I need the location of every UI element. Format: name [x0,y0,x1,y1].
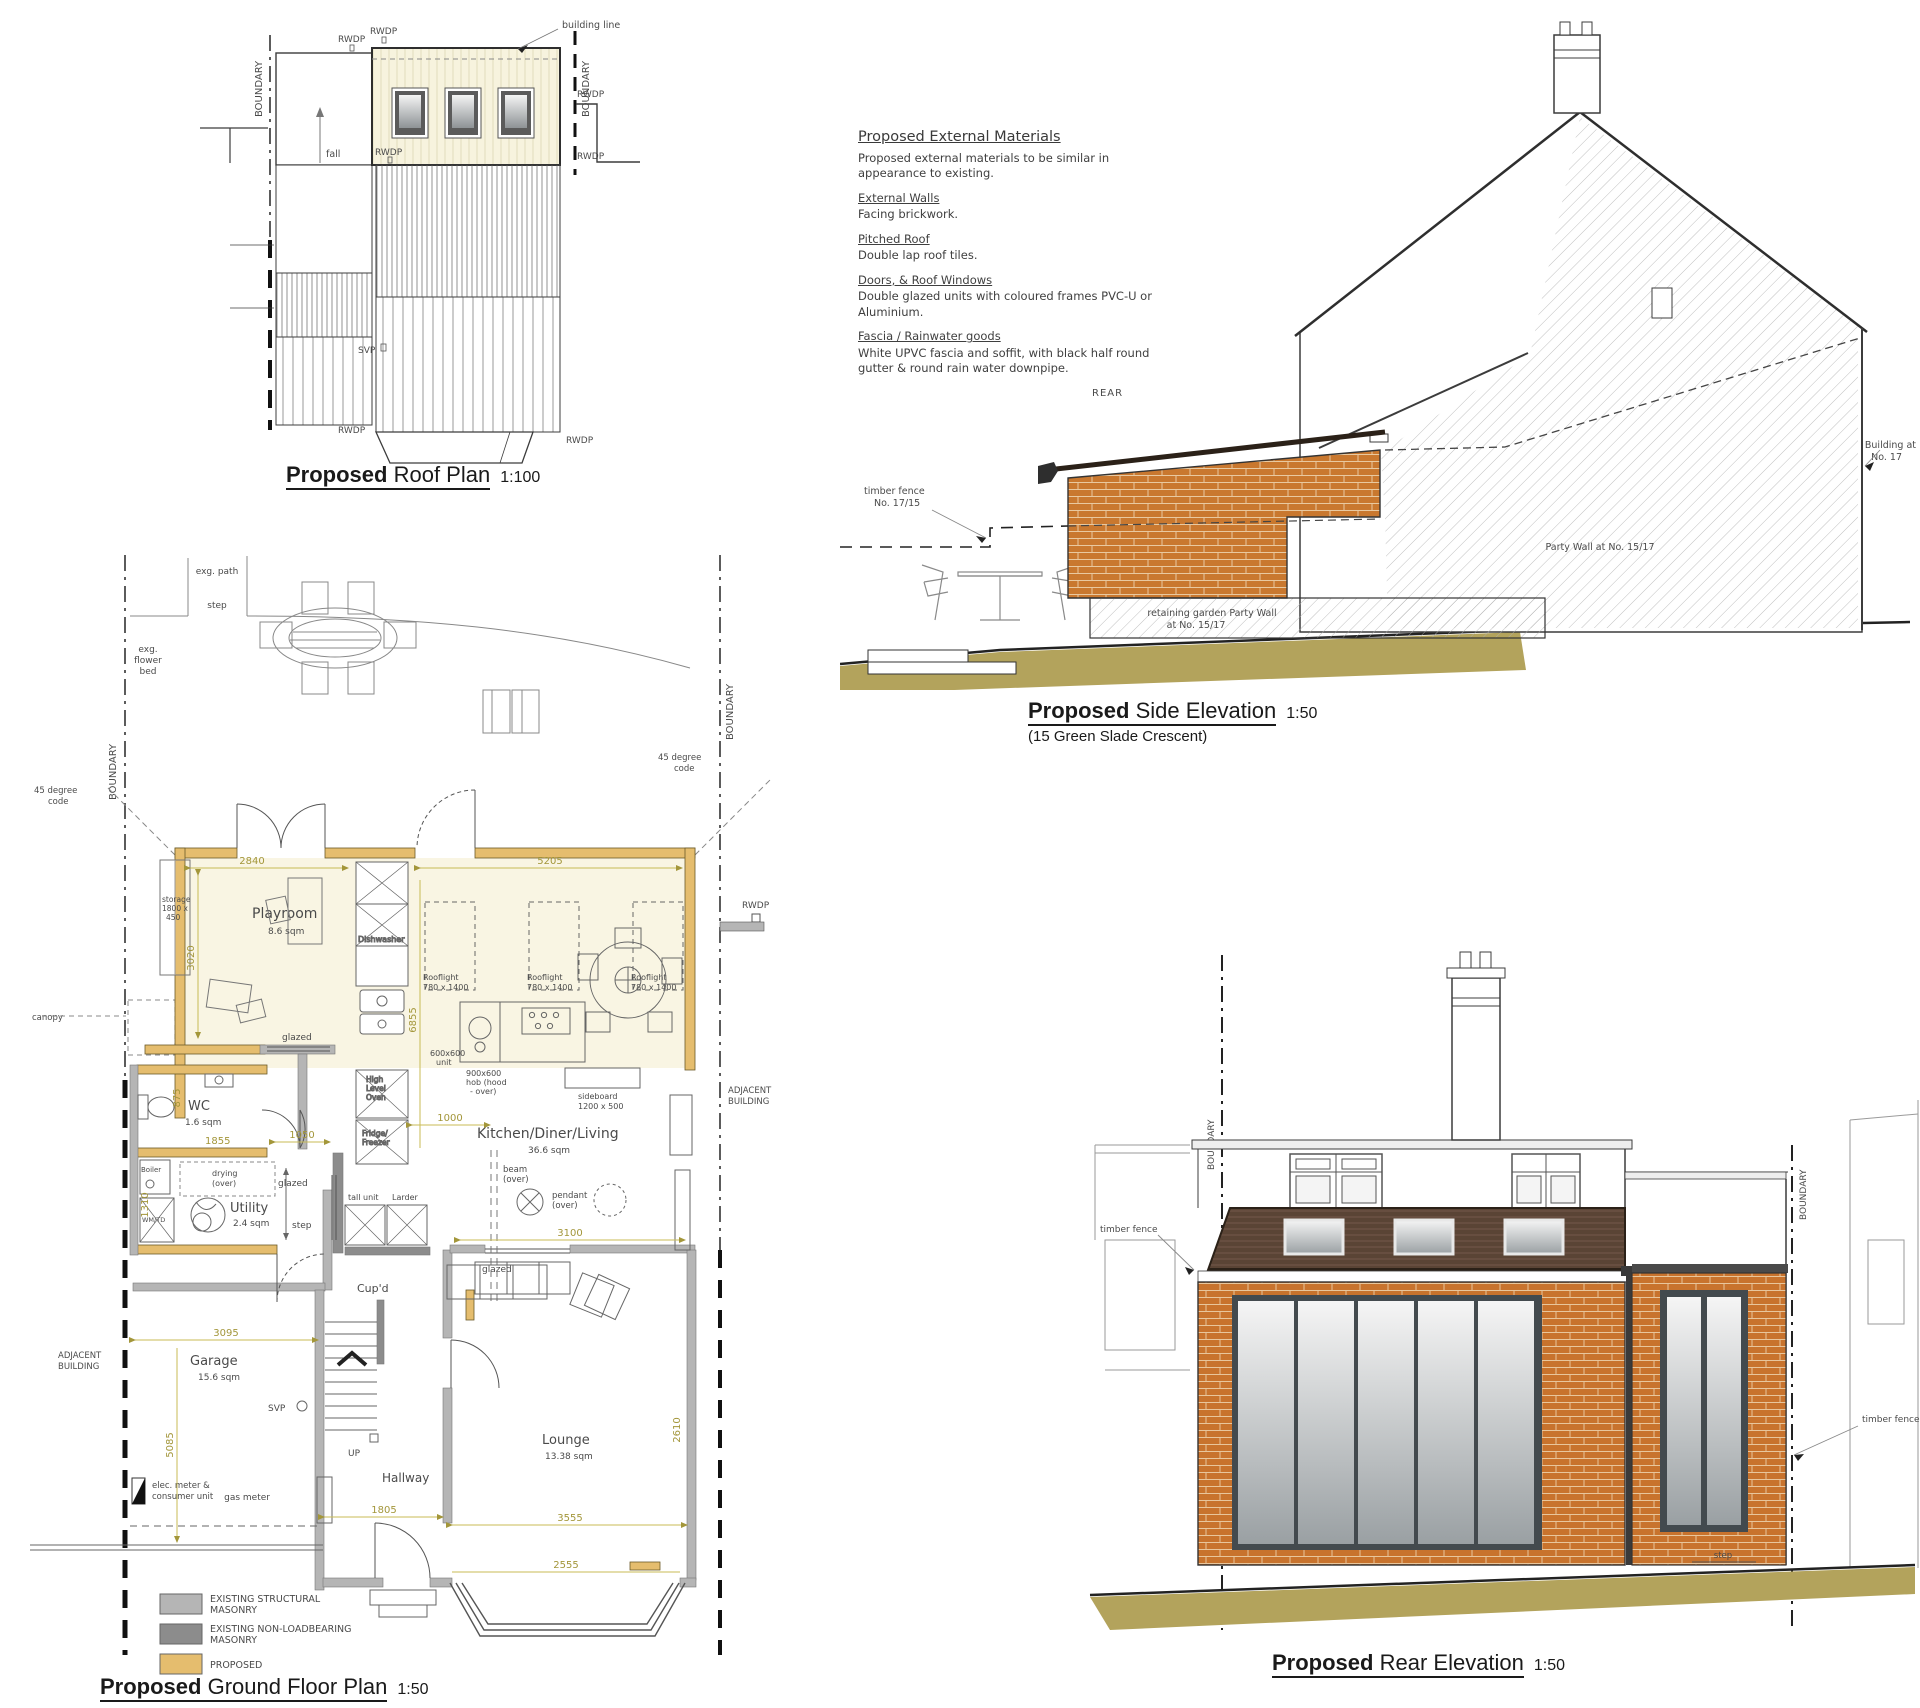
side-return-window [1660,1290,1748,1532]
architectural-drawing-sheet: BOUNDARY BOUNDARY fall bu [0,0,1920,1708]
existing-house [1295,22,1867,632]
oven-label: Level [366,1084,386,1093]
boundary-label: BOUNDARY [254,60,265,117]
hob-label: hob (hood [466,1078,507,1087]
timber-fence-label: timber fence [864,486,925,497]
garden-table [260,582,416,694]
storage-label: 1800 x [162,904,188,913]
ground-floor-plan-drawing: BOUNDARY BOUNDARY exg. path step exg. fl… [30,550,810,1705]
legend-swatch-structural [160,1594,202,1614]
title-scale: 1:50 [1534,1657,1565,1674]
flower-bed-label: flower [134,656,162,666]
garage: Garage 15.6 sqm SVP gas meter elec. mete… [30,1354,332,1550]
rwdp-label: RWDP [338,426,366,436]
side-elevation-drawing: timber fence No. 17/15 REAR retaining ga… [840,20,1920,690]
building-at-label-1: Building at [1865,440,1916,451]
title-bold: Proposed [100,1674,201,1699]
room-area: 15.6 sqm [198,1373,240,1383]
storage-label: storage [162,895,191,904]
wc-room: WC 1.6 sqm [138,1074,233,1128]
bay-window [450,1583,685,1636]
room-area: 2.4 sqm [233,1219,269,1229]
legend-label: MASONRY [210,1605,257,1616]
rwdp-label: RWDP [375,148,403,158]
boundary-label: BOUNDARY [581,60,592,117]
boundary-label: BOUNDARY [108,743,119,800]
staircase [325,1322,378,1442]
rwdp-label: RWDP [742,901,770,911]
room-area: 13.38 sqm [545,1452,593,1462]
deg-code-label: code [674,764,695,774]
title-scale: 1:100 [500,469,540,486]
dishwasher-label: Dishwasher [358,935,405,944]
rooflight-label: 780 x 1400 [527,983,572,992]
dim-1805: 1805 [371,1505,396,1516]
dim-5085: 5085 [165,1432,176,1457]
fridge-label: Fridge/ [362,1129,388,1138]
sideboard-label: sideboard [578,1092,618,1101]
deg-code-label: 45 degree [658,753,701,763]
adjacent-label: ADJACENT [58,1351,102,1361]
storage-label: 450 [166,913,181,922]
exg-path-label: exg. path [196,567,239,577]
glazed-label: glazed [282,1033,312,1043]
rooflight-label: Rooflight [423,973,459,982]
rooflight [1285,1220,1563,1254]
rear-elevation-title: Proposed Rear Elevation1:50 [1272,1650,1565,1676]
timber-fence-label: timber fence [1862,1415,1920,1425]
adjacent-label: BUILDING [728,1097,769,1107]
title-bold: Proposed [286,462,387,487]
fridge-label: Freezer [362,1138,390,1147]
hob-label: 900x600 [466,1069,501,1078]
rear-label: REAR [1092,388,1123,399]
pendant-label: pendant [552,1191,588,1201]
rwdp-label: RWDP [338,35,366,45]
pantry-units [345,1205,427,1245]
dim-2555: 2555 [553,1560,578,1571]
deg-code-label: 45 degree [34,786,77,796]
roof-plan-drawing: BOUNDARY BOUNDARY fall bu [170,5,700,465]
rooflight-label: Rooflight [631,973,667,982]
hob-label: - over) [470,1087,496,1096]
upper-window-right [1512,1154,1580,1208]
extension-roof [1208,1208,1632,1270]
adjacent-building-labels: ADJACENT BUILDING ADJACENT BUILDING [58,1086,772,1372]
party-wall-label: Party Wall at No. 15/17 [1545,542,1654,553]
legend-swatch-nonloadbearing [160,1624,202,1644]
sideboard-label: 1200 x 500 [578,1102,623,1111]
rear-elevation-drawing: BOUNDARY BOUNDARY [1080,940,1920,1640]
dim-6855: 6855 [408,1007,419,1032]
extension-brick-wall [1198,1266,1637,1565]
chimney [1447,952,1505,1140]
legend-label: EXISTING NON-LOADBEARING [210,1624,352,1635]
beam-label: (over) [503,1175,529,1185]
elec-meter-label: elec. meter & [152,1481,210,1491]
step-label: step [292,1221,312,1231]
boundary-label: BOUNDARY [725,683,736,740]
rooflight-label: Rooflight [527,973,563,982]
title-rest: Roof Plan [394,462,491,487]
canopy-label: canopy [32,1013,63,1023]
dim-3020: 3020 [186,945,197,970]
gutter-icon [1038,462,1058,484]
ground-floor-title: Proposed Ground Floor Plan1:50 [100,1674,429,1700]
gas-meter-label: gas meter [224,1493,270,1503]
legend-label: MASONRY [210,1635,257,1646]
utility-room: Boiler WM/TD drying (over) Utility 2.4 s… [140,1160,289,1242]
elec-meter-label: consumer unit [152,1492,214,1502]
upper-window-left [1290,1154,1382,1208]
room-area: 8.6 sqm [268,927,304,937]
patio-table-chairs [922,565,1078,620]
deg-code-label: code [48,797,69,807]
rwdp-label: RWDP [370,27,398,37]
glazed-label: glazed [278,1179,308,1189]
legend-swatch-proposed [160,1654,202,1674]
dim-1050: 1050 [289,1130,314,1141]
title-scale: 1:50 [1286,705,1317,722]
adjacent-label: ADJACENT [728,1086,772,1096]
room-area: 1.6 sqm [185,1118,221,1128]
beam-label: beam [503,1165,527,1175]
bifold-glazed-doors [1232,1295,1542,1550]
oven-label: High [366,1075,383,1084]
flower-bed-label: bed [140,667,157,677]
dim-3555: 3555 [557,1513,582,1524]
porch [370,1590,436,1617]
dim-1310: 1310 [140,1192,151,1217]
svp-label: SVP [268,1404,286,1414]
room-label-kitchen: Kitchen/Diner/Living [477,1126,619,1142]
dim-1855: 1855 [205,1136,230,1147]
plan-legend: EXISTING STRUCTURAL MASONRY EXISTING NON… [160,1594,352,1674]
roof-right-block [376,165,560,463]
room-label-utility: Utility [230,1201,269,1216]
unit-label: 600x600 [430,1049,465,1058]
rooflight-label: 780 x 1400 [423,983,468,992]
chimney [1554,22,1600,113]
side-elevation-subtitle: (15 Green Slade Crescent) [1028,728,1207,745]
room-area: 36.6 sqm [528,1146,570,1156]
legend-label: EXISTING STRUCTURAL [210,1594,321,1605]
adjacent-label: BUILDING [58,1362,99,1372]
boundary-label: BOUNDARY [1799,1169,1809,1220]
garden: exg. path step exg. flower bed [130,556,690,733]
downpipe [1626,1274,1632,1565]
room-label-playroom: Playroom [252,906,317,922]
retaining-wall-label-2: at No. 15/17 [1167,620,1226,631]
step-label: step [1714,1551,1732,1561]
room-label-hallway: Hallway [382,1471,429,1485]
rwdp-label: RWDP [577,152,605,162]
legend-label: PROPOSED [210,1660,262,1671]
side-return-section [1625,1172,1788,1565]
pendant-label: (over) [552,1201,578,1211]
larder-label: Larder [392,1193,419,1202]
lounge: Lounge 13.38 sqm [370,1262,685,1636]
room-label-garage: Garage [190,1354,238,1369]
title-bold: Proposed [1272,1650,1373,1675]
unit-label: unit [436,1058,452,1067]
retaining-wall-label-1: retaining garden Party Wall [1147,608,1276,619]
dim-3100: 3100 [557,1228,582,1239]
fall-label: fall [326,149,340,160]
dim-5205: 5205 [537,856,562,867]
title-rest: Rear Elevation [1380,1650,1524,1675]
dim-875: 875 [172,1088,183,1107]
extension-floor [185,858,685,1068]
tall-unit-label: tall unit [348,1193,379,1202]
step-label: step [207,601,227,611]
gutter-band [1192,1140,1632,1149]
timber-fence-label: timber fence [1100,1225,1158,1235]
drying-label: drying [212,1169,237,1178]
title-scale: 1:50 [397,1681,428,1698]
side-elevation-title: Proposed Side Elevation1:50 [1028,698,1317,724]
up-label: UP [348,1449,361,1459]
rwdp-label: RWDP [566,436,594,446]
roof-left-block [200,53,372,425]
oven-label: Oven [366,1093,386,1102]
roof-plan-title: Proposed Roof Plan1:100 [286,462,540,488]
room-label-lounge: Lounge [542,1433,590,1448]
dim-1000: 1000 [437,1113,462,1124]
drying-label: (over) [212,1179,236,1188]
flower-bed-label: exg. [138,645,157,655]
title-rest: Ground Floor Plan [208,1674,388,1699]
dim-3095: 3095 [213,1328,238,1339]
boiler-label: Boiler [141,1166,161,1174]
timber-fence-number: No. 17/15 [874,498,920,509]
title-rest: Side Elevation [1136,698,1277,723]
rwdp-label: RWDP [577,90,605,100]
title-bold: Proposed [1028,698,1129,723]
rooflight-windows [392,88,534,138]
building-at-label-2: No. 17 [1871,452,1902,463]
dim-2610: 2610 [672,1417,683,1442]
cupd-label: Cup'd [357,1282,389,1295]
dim-2840: 2840 [239,856,264,867]
building-line-label: building line [562,20,620,31]
svp-label: SVP [358,346,376,356]
room-label-wc: WC [188,1099,210,1114]
roof-boundary-left: BOUNDARY [254,35,270,430]
